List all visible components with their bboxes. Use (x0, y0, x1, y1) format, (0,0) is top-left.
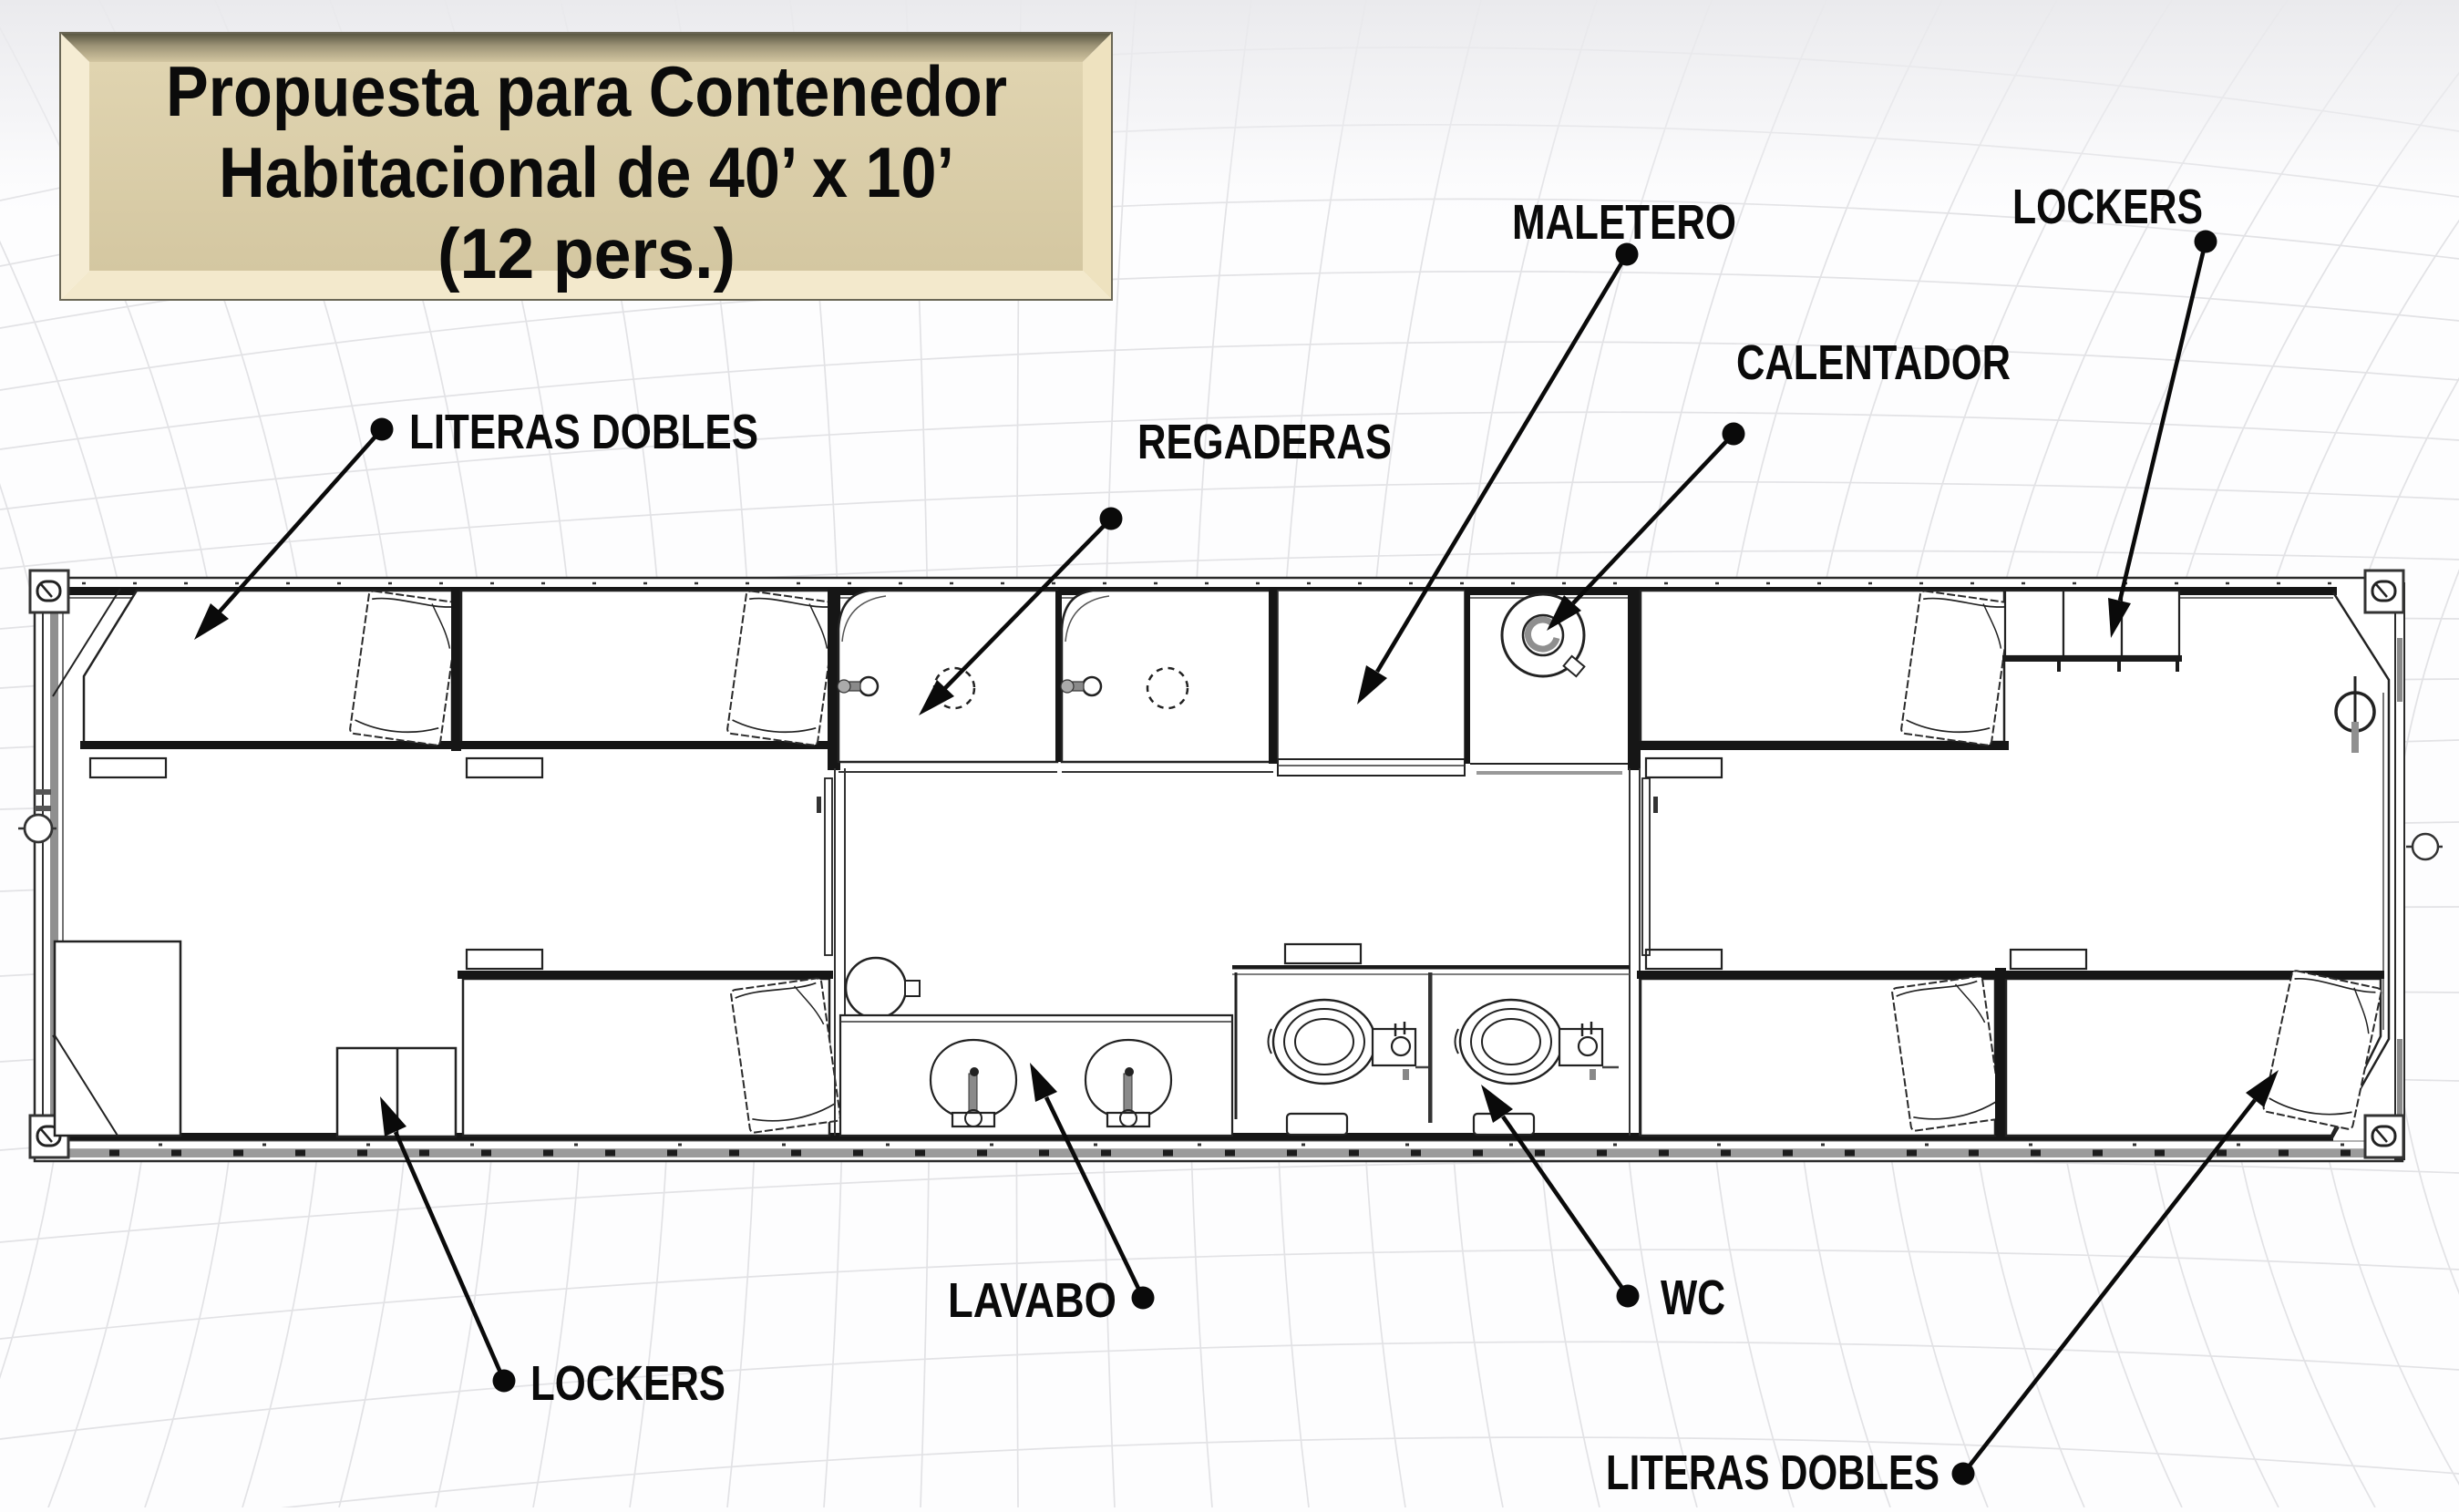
svg-text:CALENTADOR: CALENTADOR (1736, 335, 2011, 390)
svg-text:LOCKERS: LOCKERS (2012, 180, 2203, 234)
svg-text:(12 pers.): (12 pers.) (437, 213, 736, 293)
svg-text:MALETERO: MALETERO (1512, 195, 1736, 250)
svg-text:LITERAS DOBLES: LITERAS DOBLES (409, 405, 758, 459)
svg-text:WC: WC (1661, 1270, 1725, 1325)
svg-text:Propuesta para Contenedor: Propuesta para Contenedor (166, 51, 1007, 131)
svg-text:LAVABO: LAVABO (948, 1273, 1116, 1328)
svg-text:LOCKERS: LOCKERS (530, 1356, 725, 1411)
svg-text:Habitacional de 40’ x 10’: Habitacional de 40’ x 10’ (219, 132, 954, 212)
svg-text:LITERAS DOBLES: LITERAS DOBLES (1606, 1445, 1939, 1500)
svg-text:REGADERAS: REGADERAS (1137, 415, 1392, 469)
